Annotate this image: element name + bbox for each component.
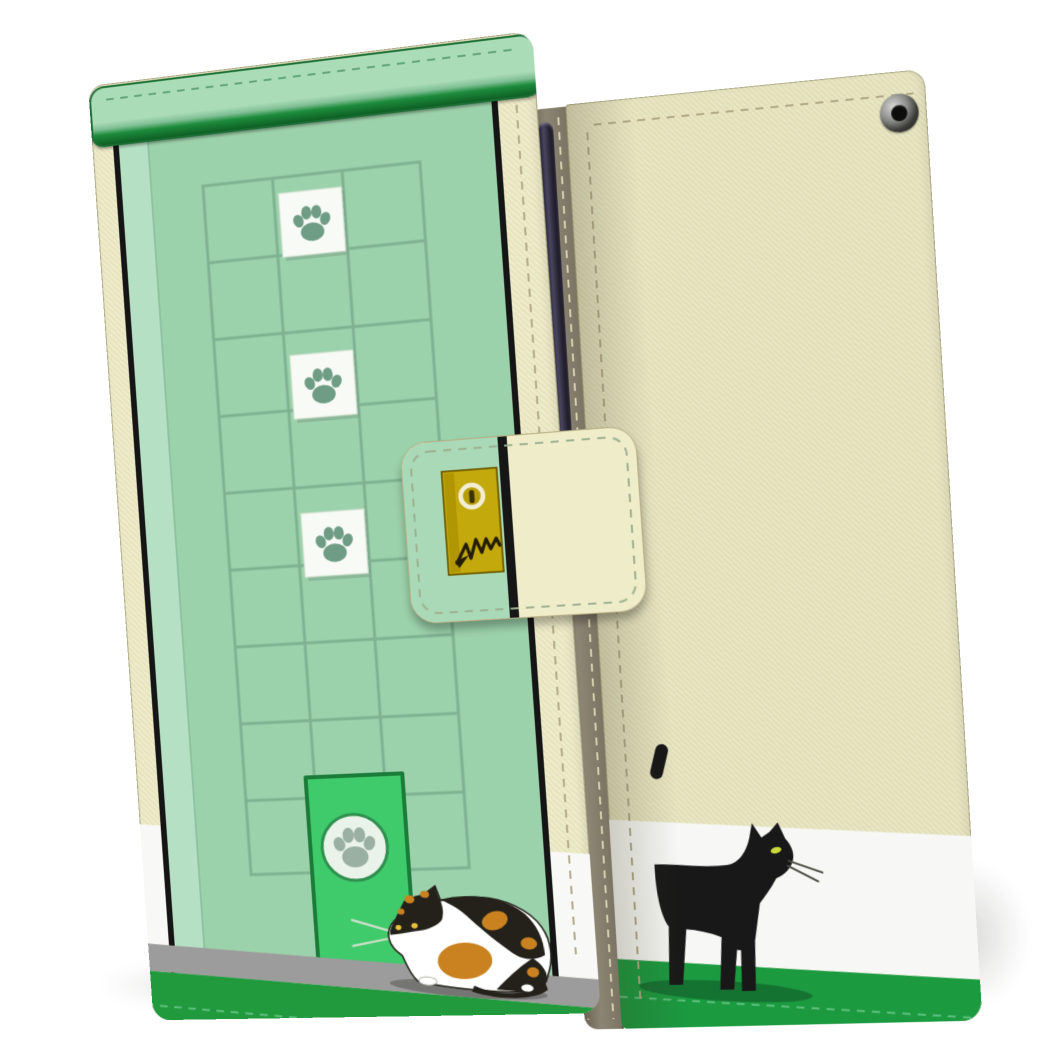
product-photo-stage [0,0,1060,1060]
strap-stitching [400,426,647,624]
black-cat-whiskers [787,861,822,882]
flap-stitch [106,48,519,101]
calico-cat [379,870,571,1010]
calico-whiskers [351,920,389,949]
camera-grommet-hole [891,104,908,122]
closure-strap [399,425,648,625]
case-front-view [88,31,601,1020]
